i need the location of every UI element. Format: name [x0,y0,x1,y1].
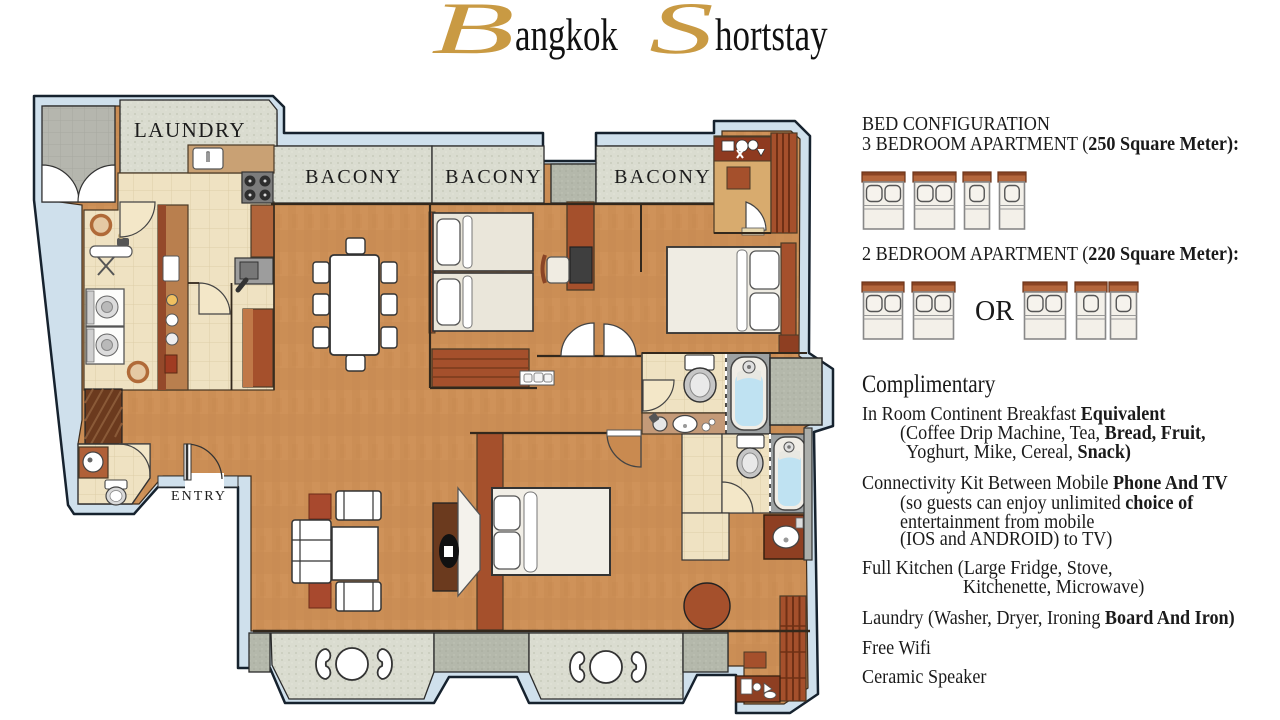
svg-text:BACONY: BACONY [445,166,543,188]
svg-text:LAUNDRY: LAUNDRY [134,118,246,142]
svg-text:BACONY: BACONY [305,166,403,188]
svg-text:ENTRY: ENTRY [171,489,227,504]
svg-text:BACONY: BACONY [614,166,712,188]
